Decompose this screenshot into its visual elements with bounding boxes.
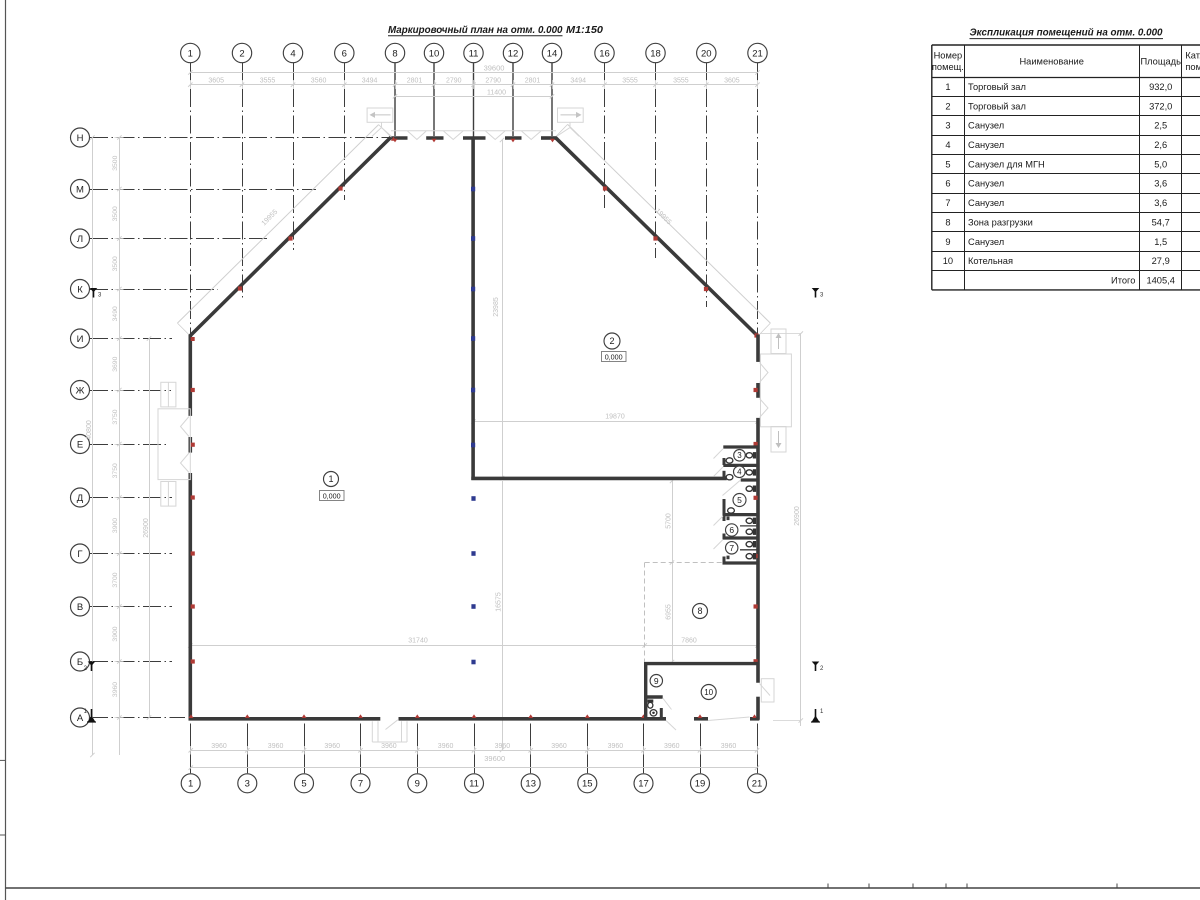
- svg-text:11: 11: [469, 48, 479, 59]
- svg-text:Номер: Номер: [934, 51, 963, 61]
- svg-text:6: 6: [729, 525, 734, 535]
- svg-text:3960: 3960: [438, 743, 454, 750]
- svg-text:2801: 2801: [525, 78, 541, 85]
- svg-text:3960: 3960: [268, 743, 284, 750]
- svg-text:Н: Н: [77, 133, 84, 144]
- svg-text:18: 18: [650, 48, 661, 59]
- svg-text:Санузел: Санузел: [968, 237, 1004, 247]
- svg-text:5700: 5700: [666, 513, 673, 529]
- svg-text:1405,4: 1405,4: [1146, 276, 1174, 286]
- svg-text:10: 10: [704, 688, 713, 697]
- svg-text:Санузел: Санузел: [968, 140, 1004, 150]
- svg-text:5: 5: [301, 779, 306, 790]
- svg-text:3960: 3960: [664, 743, 680, 750]
- svg-text:Л: Л: [77, 234, 83, 245]
- svg-text:3560: 3560: [311, 78, 327, 85]
- svg-text:2: 2: [609, 336, 614, 346]
- svg-text:3500: 3500: [112, 206, 119, 221]
- svg-text:9: 9: [654, 676, 659, 686]
- svg-text:8: 8: [697, 606, 702, 616]
- svg-text:372,0: 372,0: [1149, 101, 1172, 111]
- svg-text:39600: 39600: [484, 754, 505, 763]
- svg-text:3750: 3750: [112, 409, 119, 424]
- svg-text:6: 6: [342, 48, 347, 59]
- svg-text:3960: 3960: [112, 682, 119, 697]
- svg-text:8: 8: [392, 48, 397, 59]
- svg-text:К: К: [77, 284, 83, 295]
- svg-text:Ж: Ж: [76, 385, 85, 396]
- svg-text:2: 2: [945, 101, 950, 111]
- svg-text:19: 19: [695, 779, 706, 790]
- svg-text:16575: 16575: [496, 592, 503, 612]
- svg-text:3: 3: [945, 121, 950, 131]
- svg-text:3500: 3500: [112, 256, 119, 271]
- svg-text:27,9: 27,9: [1152, 256, 1170, 266]
- svg-text:20: 20: [701, 48, 712, 59]
- svg-text:3960: 3960: [551, 743, 567, 750]
- svg-text:Котельная: Котельная: [968, 256, 1013, 266]
- svg-text:10: 10: [943, 256, 953, 266]
- svg-text:21: 21: [752, 779, 763, 790]
- svg-text:6: 6: [945, 179, 950, 189]
- svg-text:4: 4: [945, 140, 950, 150]
- svg-text:3: 3: [245, 779, 250, 790]
- svg-text:3555: 3555: [673, 78, 689, 85]
- svg-text:3555: 3555: [622, 78, 638, 85]
- svg-text:Зона разгрузки: Зона разгрузки: [968, 217, 1033, 227]
- svg-text:1: 1: [188, 48, 193, 59]
- svg-text:2790: 2790: [446, 78, 462, 85]
- svg-text:10: 10: [429, 48, 440, 59]
- svg-text:пом: пом: [1185, 62, 1200, 72]
- svg-text:Санузел для МГН: Санузел для МГН: [968, 159, 1045, 169]
- svg-text:Площадь: Площадь: [1140, 57, 1181, 67]
- svg-text:40800: 40800: [86, 420, 93, 440]
- svg-text:1: 1: [945, 82, 950, 92]
- svg-text:3555: 3555: [260, 78, 276, 85]
- svg-text:3690: 3690: [112, 356, 119, 371]
- svg-text:3605: 3605: [724, 78, 740, 85]
- svg-text:Б: Б: [77, 657, 83, 668]
- svg-text:3,6: 3,6: [1154, 198, 1167, 208]
- svg-text:0,000: 0,000: [605, 353, 623, 362]
- svg-text:9: 9: [945, 237, 950, 247]
- svg-text:1,5: 1,5: [1154, 237, 1167, 247]
- svg-text:2790: 2790: [485, 78, 501, 85]
- svg-text:5: 5: [945, 159, 950, 169]
- svg-text:3960: 3960: [211, 743, 227, 750]
- svg-text:5: 5: [737, 495, 742, 505]
- svg-text:В: В: [77, 602, 83, 613]
- svg-text:Маркировочный план на отм. 0.0: Маркировочный план на отм. 0.000: [388, 25, 563, 36]
- svg-text:11400: 11400: [487, 89, 506, 96]
- svg-text:Е: Е: [77, 439, 83, 450]
- svg-text:2: 2: [239, 48, 244, 59]
- svg-text:И: И: [77, 334, 84, 345]
- svg-text:М1:150: М1:150: [566, 25, 603, 36]
- svg-text:54,7: 54,7: [1152, 217, 1170, 227]
- svg-text:3960: 3960: [324, 743, 340, 750]
- svg-text:Торговый зал: Торговый зал: [968, 82, 1026, 92]
- svg-text:3900: 3900: [112, 626, 119, 641]
- svg-text:17: 17: [638, 779, 649, 790]
- svg-text:15: 15: [582, 779, 593, 790]
- svg-text:3490: 3490: [112, 306, 119, 321]
- svg-text:Наименование: Наименование: [1019, 57, 1083, 67]
- svg-text:2,6: 2,6: [1154, 140, 1167, 150]
- svg-text:3900: 3900: [112, 518, 119, 533]
- svg-text:3700: 3700: [112, 572, 119, 587]
- svg-text:7: 7: [945, 198, 950, 208]
- svg-text:7: 7: [358, 779, 363, 790]
- svg-text:39600: 39600: [484, 64, 505, 73]
- svg-text:21: 21: [752, 48, 763, 59]
- svg-text:3960: 3960: [381, 743, 397, 750]
- svg-text:2,5: 2,5: [1154, 121, 1167, 131]
- svg-text:26900: 26900: [794, 506, 801, 526]
- svg-text:31740: 31740: [408, 638, 428, 645]
- svg-text:13: 13: [525, 779, 536, 790]
- svg-text:6955: 6955: [666, 604, 673, 620]
- svg-text:12: 12: [508, 48, 519, 59]
- svg-text:14: 14: [547, 48, 558, 59]
- svg-text:23985: 23985: [493, 297, 500, 317]
- svg-text:5,0: 5,0: [1154, 159, 1167, 169]
- svg-text:3,6: 3,6: [1154, 179, 1167, 189]
- svg-text:3: 3: [737, 451, 742, 460]
- svg-text:3500: 3500: [112, 155, 119, 170]
- svg-text:Санузел: Санузел: [968, 179, 1004, 189]
- svg-text:11: 11: [469, 779, 479, 790]
- svg-text:1: 1: [328, 474, 333, 484]
- svg-text:3960: 3960: [608, 743, 624, 750]
- svg-text:3494: 3494: [362, 78, 378, 85]
- svg-text:9: 9: [415, 779, 420, 790]
- svg-text:3750: 3750: [112, 463, 119, 478]
- svg-text:26900: 26900: [143, 518, 150, 538]
- svg-text:Д: Д: [77, 493, 84, 504]
- svg-text:М: М: [76, 184, 84, 195]
- svg-text:3605: 3605: [208, 78, 224, 85]
- svg-text:7: 7: [729, 543, 734, 553]
- svg-text:8: 8: [945, 217, 950, 227]
- svg-text:Торговый зал: Торговый зал: [968, 101, 1026, 111]
- svg-text:0,000: 0,000: [323, 492, 341, 501]
- svg-text:7860: 7860: [681, 638, 697, 645]
- svg-text:Экспликация помещений на отм.: Экспликация помещений на отм. 0.000: [970, 28, 1163, 39]
- svg-text:Г: Г: [77, 549, 82, 560]
- svg-text:16: 16: [599, 48, 610, 59]
- svg-text:1: 1: [188, 779, 193, 790]
- svg-text:4: 4: [290, 48, 295, 59]
- svg-text:19870: 19870: [605, 414, 625, 421]
- svg-text:Кат.: Кат.: [1185, 51, 1200, 61]
- svg-text:помещ.: помещ.: [932, 62, 964, 72]
- svg-text:4: 4: [737, 468, 742, 477]
- svg-text:3494: 3494: [570, 78, 586, 85]
- svg-text:Итого: Итого: [1111, 276, 1135, 286]
- svg-text:2801: 2801: [407, 78, 423, 85]
- svg-text:Санузел: Санузел: [968, 198, 1004, 208]
- svg-text:3960: 3960: [721, 743, 737, 750]
- svg-text:932,0: 932,0: [1149, 82, 1172, 92]
- svg-text:Санузел: Санузел: [968, 121, 1004, 131]
